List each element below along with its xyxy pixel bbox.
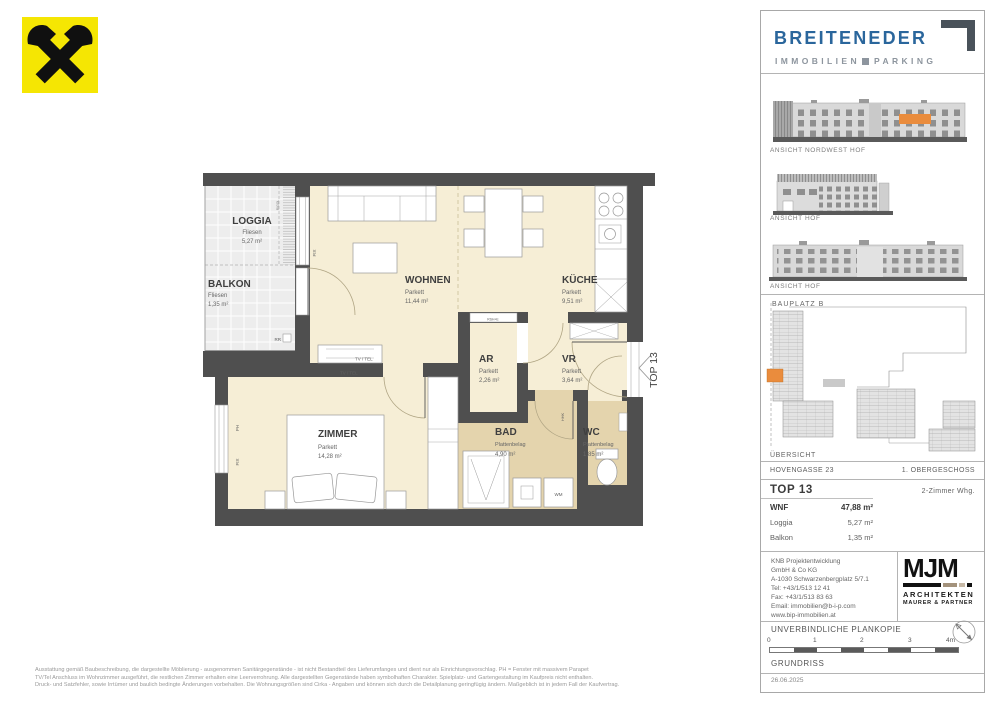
- maurer-partner-label: MAURER & PARTNER: [903, 600, 981, 606]
- wnf-value: 47,88 m²: [801, 503, 873, 512]
- brand-sub-right: PARKING: [874, 56, 936, 66]
- pillow: [292, 473, 334, 503]
- level-label: 1. OBERGESCHOSS: [902, 467, 975, 474]
- floorplan: LOGGIA Fliesen 5,27 m² BALKON Fliesen 1,…: [195, 165, 665, 537]
- fix-label: FIX: [312, 249, 317, 256]
- wm-label: WM: [555, 492, 563, 497]
- chair: [523, 196, 543, 212]
- grundriss-label: GRUNDRISS: [771, 659, 824, 668]
- elevation-caption: ANSICHT NORDWEST HOF: [770, 147, 866, 154]
- scale-tick-label: 4m: [946, 637, 955, 644]
- contact-line: Fax: +43/1/513 83 63: [771, 593, 869, 602]
- unit-type-label: 2-Zimmer Whg.: [922, 488, 975, 495]
- drainage-hatch: [283, 186, 295, 265]
- contact-line: KNB Projektentwicklung: [771, 557, 869, 566]
- bath-sink: [513, 478, 541, 507]
- mjm-wordmark: MJM: [903, 555, 981, 581]
- plankopie-label: UNVERBINDLICHE PLANKOPIE: [771, 625, 901, 634]
- rshe-label: RSH+E: [487, 318, 499, 322]
- room-name: BAD: [495, 427, 517, 438]
- room-area: 9,51 m²: [562, 299, 582, 305]
- room-name: KÜCHE: [562, 273, 598, 286]
- room-area: 1,85 m²: [583, 452, 603, 458]
- contact-line: Tel: +43/1/513 12 41: [771, 584, 869, 593]
- dining-table: [485, 189, 522, 257]
- disclaimer-text: Ausstattung gemäß Baubeschreibung, die d…: [35, 667, 675, 690]
- divider: [761, 551, 984, 552]
- room-floor: Plattenbelag: [583, 442, 614, 448]
- brand-name: BREITENEDER: [774, 28, 927, 49]
- brand-bracket-icon: [941, 19, 977, 55]
- room-area: 3,64 m²: [562, 378, 582, 384]
- room-floor: Fliesen: [208, 293, 227, 299]
- room-name: WOHNEN: [405, 275, 451, 286]
- room-area: 2,26 m²: [479, 378, 499, 384]
- raiffeisen-logo: [22, 17, 98, 93]
- coffee-table: [353, 243, 397, 273]
- highlighted-unit: [767, 369, 783, 382]
- disclaimer-line: Ausstattung gemäß Baubeschreibung, die d…: [35, 667, 675, 675]
- floorplan-drawing: LOGGIA Fliesen 5,27 m² BALKON Fliesen 1,…: [195, 165, 665, 537]
- divider: [761, 673, 984, 674]
- toilet: [597, 459, 617, 485]
- architekten-label: ARCHITEKTEN: [903, 590, 981, 599]
- divider: [761, 461, 984, 462]
- contact-line: www.bip-immobilien.at: [771, 611, 869, 620]
- chair: [464, 229, 484, 247]
- room-floor: Parkett: [479, 369, 498, 375]
- sofa: [328, 186, 436, 221]
- elevation-hof-drawing: [771, 169, 901, 217]
- rr-box: [283, 334, 291, 342]
- room-name: AR: [479, 354, 494, 365]
- plan-date: 26.06.2025: [771, 677, 804, 684]
- contact-line: Email: immobilien@b-i-p.com: [771, 602, 869, 611]
- fix-label: FIX: [235, 458, 240, 465]
- pillow: [335, 473, 377, 503]
- scale-tick-label: 3: [908, 637, 912, 644]
- unit-label: TOP 13: [770, 484, 813, 496]
- elevation-caption: ANSICHT HOF: [770, 215, 821, 222]
- room-area: 5,27 m²: [242, 239, 262, 245]
- bar-segment: [903, 583, 941, 587]
- divider: [761, 294, 984, 295]
- chair: [523, 229, 543, 247]
- room-fills: [205, 186, 627, 509]
- room-floor: Parkett: [318, 445, 337, 451]
- divider: [761, 73, 984, 74]
- room-name: ZIMMER: [318, 429, 358, 440]
- top13-entrance-label: TOP 13: [648, 352, 660, 388]
- scale-tick-label: 0: [767, 637, 771, 644]
- elevation-hof2-drawing: [769, 237, 971, 285]
- scale-bar: [769, 647, 959, 653]
- tvtel-label: TV / TEL: [340, 371, 358, 376]
- rr-label: RR: [275, 337, 282, 342]
- room-name: VR: [562, 354, 577, 365]
- uebersicht-label: ÜBERSICHT: [770, 452, 816, 459]
- contact-line: GmbH & Co KG: [771, 566, 869, 575]
- elevation-nordwest-drawing: [771, 97, 973, 145]
- chair: [464, 196, 484, 212]
- wardrobe: [428, 377, 458, 509]
- mjm-color-bar: [903, 583, 981, 587]
- brand-square-icon: [862, 58, 869, 65]
- vertical-divider: [897, 551, 898, 621]
- architects-logo: MJM ARCHITEKTEN MAURER & PARTNER: [903, 555, 981, 606]
- siteplan-drawing: [761, 297, 985, 453]
- brand-sub-left: IMMOBILIEN: [775, 56, 860, 66]
- rigol-label: RIGOL: [276, 200, 280, 211]
- room-name: WC: [583, 427, 600, 438]
- room-floor: Plattenbelag: [495, 442, 526, 448]
- plan-sheet: LOGGIA Fliesen 5,27 m² BALKON Fliesen 1,…: [0, 0, 1000, 706]
- north-arrow-icon: [949, 619, 979, 649]
- hhk-label: HHK: [561, 413, 565, 421]
- bar-segment: [943, 583, 957, 587]
- wc-sink: [619, 413, 627, 431]
- room-floor: Parkett: [562, 290, 581, 296]
- title-block-panel: BREITENEDER IMMOBILIEN PARKING ANSICHT N…: [760, 10, 985, 693]
- elevation-caption: ANSICHT HOF: [770, 283, 821, 290]
- ph-label: PH: [235, 425, 240, 431]
- divider: [761, 498, 873, 499]
- room-name: LOGGIA: [232, 216, 271, 227]
- loggia-label: Loggia: [770, 518, 793, 527]
- room-name: BALKON: [208, 279, 251, 290]
- brand-subtitle: IMMOBILIEN PARKING: [775, 56, 936, 66]
- bar-segment: [967, 583, 972, 587]
- bar-segment: [959, 583, 965, 587]
- room-floor: Fliesen: [242, 230, 261, 236]
- room-area: 11,44 m²: [405, 299, 428, 305]
- nightstand: [265, 491, 285, 509]
- loggia-value: 5,27 m²: [801, 518, 873, 527]
- contact-line: A-1030 Schwarzenbergplatz 5/7.1: [771, 575, 869, 584]
- developer-contact: KNB Projektentwicklung GmbH & Co KG A-10…: [771, 557, 869, 620]
- room-area: 4,90 m²: [495, 452, 515, 458]
- balkon-value: 1,35 m²: [801, 533, 873, 542]
- nightstand: [386, 491, 406, 509]
- room-floor: Parkett: [405, 290, 424, 296]
- room-floor: Parkett: [562, 369, 581, 375]
- divider: [761, 479, 984, 480]
- street-label: HOVENGASSE 23: [770, 467, 834, 474]
- wnf-label: WNF: [770, 503, 788, 512]
- balkon-label: Balkon: [770, 533, 793, 542]
- room-area: 1,35 m²: [208, 302, 228, 308]
- raiffeisen-gable-cross-icon: [22, 17, 98, 93]
- scale-tick-label: 2: [860, 637, 864, 644]
- tvtel-label: TV / TEL: [355, 357, 373, 362]
- disclaimer-line: Druck- und Satzfehler, sowie Irrtümer un…: [35, 682, 675, 690]
- scale-tick-label: 1: [813, 637, 817, 644]
- room-area: 14,28 m²: [318, 454, 342, 460]
